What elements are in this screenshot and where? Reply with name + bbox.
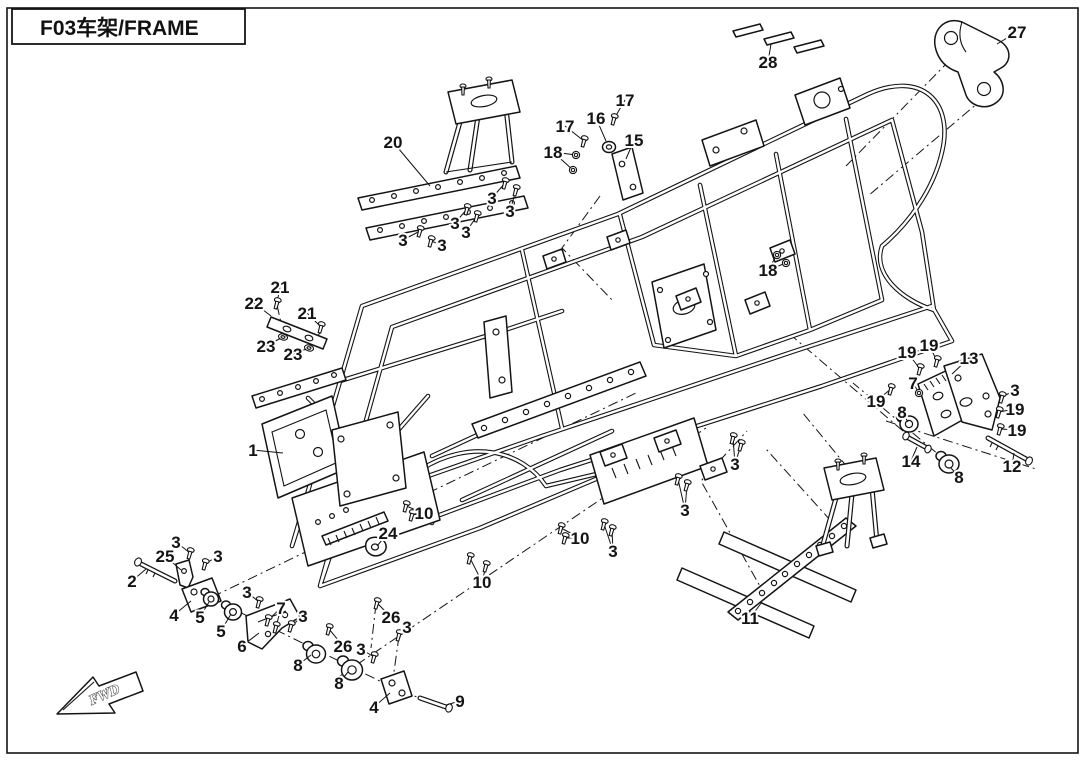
callout-number: 27 (1008, 23, 1027, 42)
bolt-icon (200, 558, 209, 571)
nut-icon (572, 151, 581, 160)
callout-number: 3 (213, 547, 222, 566)
callout-number: 23 (257, 337, 276, 356)
page-title: F03车架/FRAME (40, 16, 199, 40)
bolt-icon (465, 552, 474, 565)
diagram-svg: F03车架/FRAME (0, 0, 1090, 760)
bolt-icon (272, 297, 281, 310)
callout-number: 26 (334, 637, 353, 656)
bolt-icon (932, 355, 941, 368)
part-27-rear-bracket (935, 21, 1009, 107)
callout-number: 3 (608, 542, 617, 561)
callout-number: 3 (402, 618, 411, 637)
callout-21: 21 (271, 278, 290, 310)
bolt-icon (886, 383, 895, 396)
callout-3: 3 (242, 583, 263, 609)
callout-number: 3 (450, 214, 459, 233)
callout-5: 5 (216, 614, 231, 641)
callout-number: 24 (379, 524, 398, 543)
bolt-icon (185, 547, 194, 560)
bolt-icon (426, 235, 435, 248)
callout-number: 20 (384, 133, 403, 152)
callout-number: 8 (897, 403, 906, 422)
callout-number: 28 (759, 53, 778, 72)
callout-23: 23 (284, 344, 315, 364)
callout-19: 19 (867, 383, 896, 411)
callout-17: 17 (609, 91, 634, 126)
callout-number: 15 (625, 131, 644, 150)
fwd-direction-arrow: FWD (57, 672, 143, 714)
callout-number: 3 (505, 202, 514, 221)
callout-number: 2 (127, 572, 136, 591)
bolt-icon (254, 596, 263, 609)
callout-3: 3 (356, 640, 378, 664)
callout-number: 3 (242, 583, 251, 602)
callout-3: 3 (728, 432, 745, 474)
callout-number: 9 (455, 692, 464, 711)
callout-10: 10 (465, 552, 491, 592)
callout-number: 10 (473, 573, 492, 592)
callout-3: 3 (171, 533, 194, 560)
callout-number: 18 (544, 143, 563, 162)
nut-icon (782, 259, 791, 268)
bolt-icon (481, 560, 490, 573)
callout-12: 12 (1003, 453, 1022, 476)
callout-16: 16 (587, 109, 606, 141)
callout-number: 8 (954, 468, 963, 487)
bolt-icon (324, 623, 333, 636)
callout-3: 3 (426, 235, 447, 255)
callout-number: 23 (284, 345, 303, 364)
callout-8: 8 (897, 403, 908, 422)
bolt-icon (369, 651, 378, 664)
callout-number: 12 (1003, 457, 1022, 476)
callout-number: 7 (908, 374, 917, 393)
callout-8: 8 (334, 672, 348, 693)
bolt-icon (599, 518, 608, 531)
callout-3: 3 (599, 518, 618, 561)
callout-number: 6 (237, 637, 246, 656)
callout-number: 3 (398, 231, 407, 250)
callout-19: 19 (920, 336, 942, 368)
callout-24: 24 (377, 524, 398, 546)
callout-number: 22 (245, 294, 264, 313)
parts-diagram-page: F03车架/FRAME (0, 0, 1090, 760)
callout-number: 19 (867, 392, 886, 411)
callout-number: 3 (461, 223, 470, 242)
callout-number: 26 (382, 608, 401, 627)
callout-number: 3 (437, 236, 446, 255)
part-28-shims (733, 24, 824, 53)
callout-number: 19 (1006, 400, 1025, 419)
callout-number: 3 (487, 189, 496, 208)
callout-number: 3 (730, 455, 739, 474)
callout-number: 3 (680, 501, 689, 520)
callout-14: 14 (902, 447, 921, 471)
callout-number: 21 (298, 304, 317, 323)
callout-number: 25 (156, 547, 175, 566)
callout-number: 14 (902, 452, 921, 471)
callout-number: 8 (293, 656, 302, 675)
bolt-icon (607, 524, 616, 537)
callout-28: 28 (759, 44, 778, 72)
title-block: F03车架/FRAME (12, 9, 245, 44)
callout-27: 27 (997, 23, 1026, 44)
callout-3: 3 (200, 547, 223, 571)
part-20-front-rack-support (358, 77, 528, 240)
callout-number: 3 (1010, 381, 1019, 400)
callout-19: 19 (995, 421, 1026, 440)
callout-number: 11 (741, 609, 759, 628)
callout-10: 10 (556, 522, 589, 548)
callout-number: 8 (334, 674, 343, 693)
callout-number: 10 (415, 504, 434, 523)
bolt-icon (579, 135, 588, 148)
callout-number: 19 (898, 343, 917, 362)
part-15-18-hanger-bracket (603, 142, 644, 201)
callout-number: 3 (298, 607, 307, 626)
callout-number: 7 (276, 599, 285, 618)
bolt-icon (609, 113, 618, 126)
callout-number: 18 (759, 261, 778, 280)
callout-number: 13 (960, 349, 979, 368)
callout-8: 8 (951, 468, 964, 487)
callout-22: 22 (245, 294, 271, 316)
callout-number: 1 (248, 441, 257, 460)
callout-number: 19 (1008, 421, 1027, 440)
callout-number: 19 (920, 336, 939, 355)
bolt-icon (682, 479, 691, 492)
callout-number: 17 (556, 117, 575, 136)
callout-number: 3 (356, 640, 365, 659)
callout-20: 20 (384, 133, 430, 186)
callout-number: 16 (587, 109, 606, 128)
callout-26: 26 (372, 597, 400, 627)
callout-number: 21 (271, 278, 290, 297)
callout-number: 4 (169, 606, 179, 625)
callout-number: 4 (369, 698, 379, 717)
callout-2: 2 (127, 569, 146, 591)
part-11-rear-rack-support (677, 453, 887, 638)
callout-number: 5 (195, 608, 204, 627)
callout-number: 17 (616, 91, 635, 110)
callout-3: 3 (673, 473, 691, 520)
bolt-icon (372, 597, 381, 610)
callout-26: 26 (324, 623, 352, 656)
callout-18: 18 (544, 143, 581, 174)
callout-number: 10 (571, 529, 590, 548)
bolt-icon (511, 184, 520, 197)
callout-number: 5 (216, 622, 225, 641)
